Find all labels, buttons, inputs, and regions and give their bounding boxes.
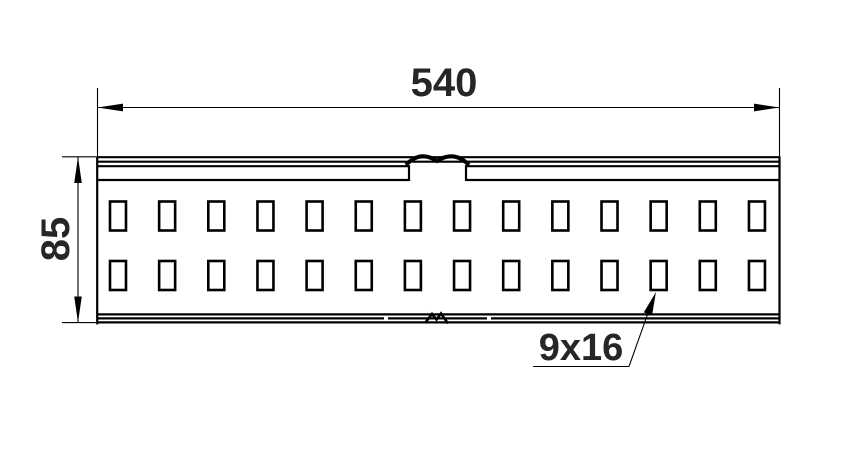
height-arrow-up-icon <box>74 157 82 183</box>
slot-leader-arrow-icon <box>644 292 656 316</box>
slot <box>749 261 765 290</box>
slot <box>602 261 618 290</box>
tray-top-rail <box>97 156 780 181</box>
slot <box>454 261 470 290</box>
slot-size-label: 9x16 <box>533 329 629 367</box>
slot <box>700 261 716 290</box>
slot <box>651 202 667 231</box>
slot <box>405 261 421 290</box>
length-arrow-right-icon <box>754 104 780 112</box>
slot <box>602 202 618 231</box>
slot <box>307 202 323 231</box>
slot <box>503 261 519 290</box>
slot <box>552 202 568 231</box>
slot <box>257 202 273 231</box>
slot <box>159 202 175 231</box>
slot <box>454 202 470 231</box>
slot <box>700 202 716 231</box>
slot <box>356 261 372 290</box>
slot <box>405 202 421 231</box>
slot <box>552 261 568 290</box>
slot <box>503 202 519 231</box>
slot <box>110 261 126 290</box>
height-arrow-down-icon <box>74 297 82 323</box>
slot <box>208 202 224 231</box>
tray-bottom-rail <box>97 314 780 324</box>
technical-drawing-canvas: 540 85 9x16 <box>0 0 851 465</box>
slot <box>307 261 323 290</box>
slot <box>651 261 667 290</box>
length-dimension-label: 540 <box>394 63 494 103</box>
height-dimension-label: 85 <box>36 189 76 289</box>
slot-grid <box>110 202 765 291</box>
length-arrow-left-icon <box>98 104 124 112</box>
slot <box>356 202 372 231</box>
slot <box>208 261 224 290</box>
slot <box>257 261 273 290</box>
slot <box>110 202 126 231</box>
slot <box>159 261 175 290</box>
slot <box>749 202 765 231</box>
